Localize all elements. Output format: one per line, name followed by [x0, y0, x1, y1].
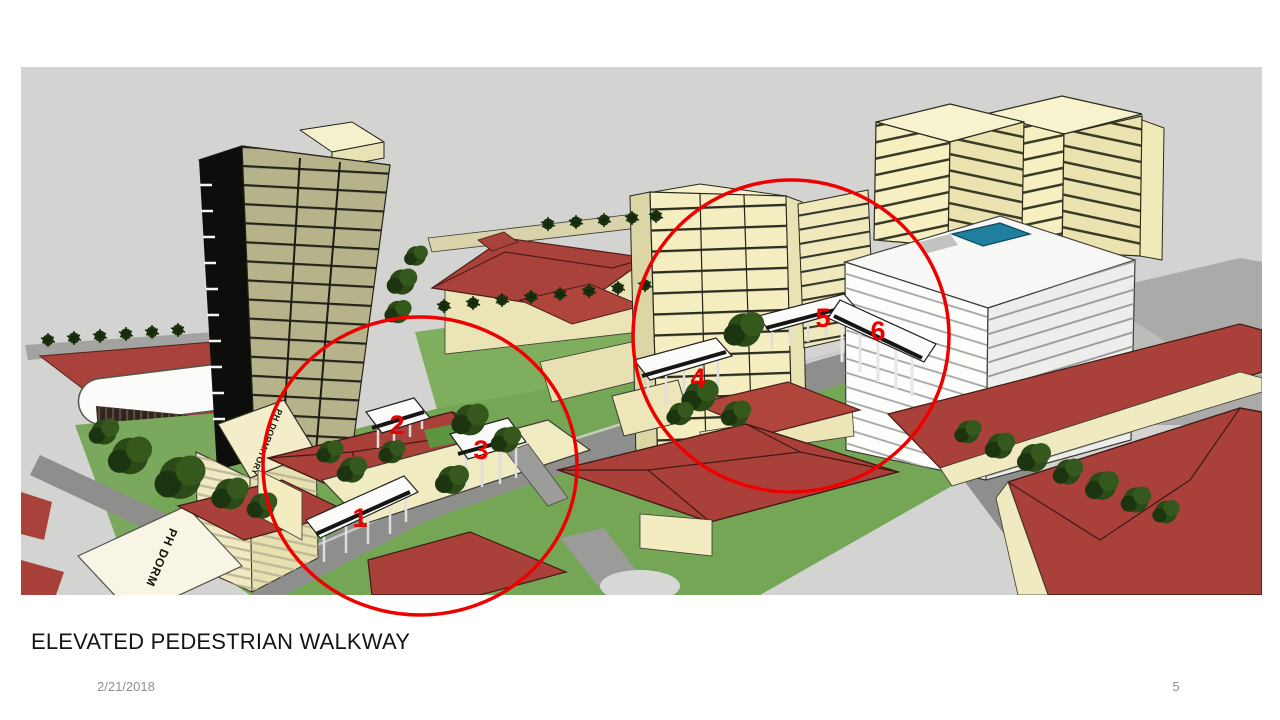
walkway-number-1: 1 [352, 503, 367, 533]
walkway-number-4: 4 [690, 363, 705, 393]
walkway-number-6: 6 [870, 316, 885, 346]
walkway-number-2: 2 [389, 410, 404, 440]
walkway-number-3: 3 [473, 435, 488, 465]
slide-title: ELEVATED PEDESTRIAN WALKWAY [31, 629, 410, 655]
slide: PH DORMITORY PH DORM [0, 0, 1280, 720]
page-number: 5 [1164, 679, 1188, 694]
footer-date: 2/21/2018 [97, 679, 155, 694]
walkway-number-5: 5 [815, 303, 830, 333]
walkway-render-image: PH DORMITORY PH DORM [0, 0, 1280, 720]
